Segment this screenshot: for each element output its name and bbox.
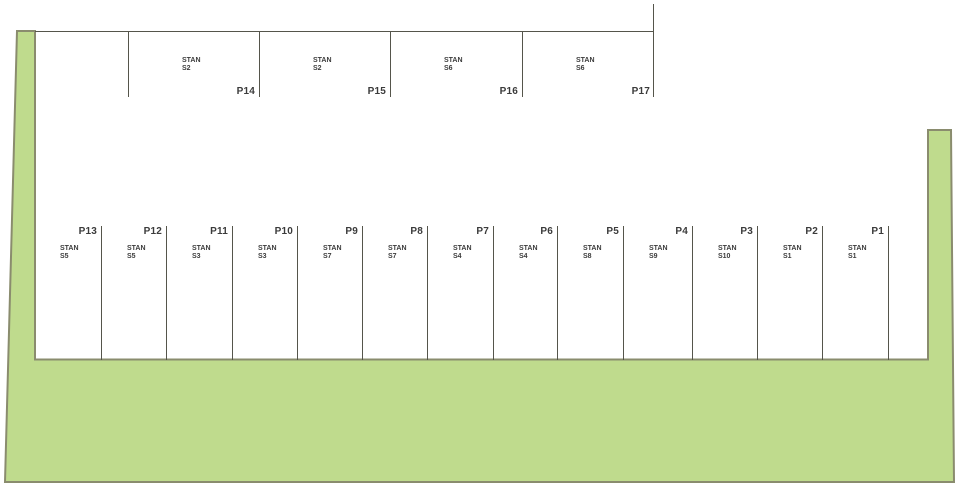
stall-unit-code: S3	[258, 253, 267, 260]
stall-assignment-label: STANS3	[192, 245, 211, 260]
stall-unit-word: STAN	[388, 245, 407, 252]
parking-stall: P7 STANS4	[428, 226, 494, 360]
stall-unit-word: STAN	[649, 245, 668, 252]
parking-stall: P12 STANS5	[102, 226, 167, 360]
stall-unit-code: S6	[576, 65, 585, 72]
stall-id-label: P14	[237, 86, 255, 97]
stall-id-label: P5	[606, 226, 619, 237]
stall-assignment-label: STANS2	[182, 57, 201, 72]
stall-unit-code: S7	[388, 253, 397, 260]
stall-unit-word: STAN	[192, 245, 211, 252]
site-plan: STANS2 P14 STANS2 P15 STANS6 P16 STANS6 …	[0, 0, 960, 489]
parking-stall: STANS6 P17	[522, 32, 654, 97]
stall-assignment-label: STANS7	[388, 245, 407, 260]
stall-id-label: P4	[675, 226, 688, 237]
stall-assignment-label: STANS2	[313, 57, 332, 72]
stall-assignment-label: STANS1	[848, 245, 867, 260]
stall-id-label: P2	[805, 226, 818, 237]
stall-unit-word: STAN	[848, 245, 867, 252]
stall-assignment-label: STANS4	[519, 245, 538, 260]
parking-stall: P4 STANS9	[624, 226, 693, 360]
stall-id-label: P3	[740, 226, 753, 237]
parking-stall: P9 STANS7	[298, 226, 363, 360]
parking-stall: P2 STANS1	[758, 226, 823, 360]
parking-stall: P6 STANS4	[494, 226, 558, 360]
stall-unit-code: S1	[848, 253, 857, 260]
stall-unit-word: STAN	[718, 245, 737, 252]
stall-id-label: P8	[410, 226, 423, 237]
stall-assignment-label: STANS5	[127, 245, 146, 260]
stall-unit-word: STAN	[313, 57, 332, 64]
stall-assignment-label: STANS8	[583, 245, 602, 260]
stall-unit-code: S10	[718, 253, 730, 260]
stall-unit-code: S9	[649, 253, 658, 260]
parking-stall: P5 STANS8	[558, 226, 624, 360]
parking-stall: P3 STANS10	[693, 226, 758, 360]
parking-stall: STANS2 P15	[259, 32, 390, 97]
stall-unit-code: S6	[444, 65, 453, 72]
parking-stall: P10 STANS3	[233, 226, 298, 360]
stall-unit-word: STAN	[258, 245, 277, 252]
stall-unit-code: S5	[127, 253, 136, 260]
stall-unit-word: STAN	[323, 245, 342, 252]
stall-assignment-label: STANS7	[323, 245, 342, 260]
stall-unit-code: S4	[519, 253, 528, 260]
stall-assignment-label: STANS1	[783, 245, 802, 260]
parking-stall: STANS2 P14	[128, 32, 259, 97]
parking-stall: STANS6 P16	[390, 32, 522, 97]
stall-unit-code: S2	[182, 65, 191, 72]
stall-assignment-label: STANS6	[444, 57, 463, 72]
stall-id-label: P13	[79, 226, 97, 237]
stall-unit-word: STAN	[444, 57, 463, 64]
stall-id-label: P15	[368, 86, 386, 97]
stall-unit-code: S3	[192, 253, 201, 260]
parking-stall: P8 STANS7	[363, 226, 428, 360]
stall-unit-code: S8	[583, 253, 592, 260]
stall-unit-code: S7	[323, 253, 332, 260]
stall-assignment-label: STANS9	[649, 245, 668, 260]
stall-unit-word: STAN	[127, 245, 146, 252]
stall-assignment-label: STANS4	[453, 245, 472, 260]
parking-stall: P1 STANS1	[823, 226, 889, 360]
stall-unit-word: STAN	[519, 245, 538, 252]
stall-unit-code: S2	[313, 65, 322, 72]
parking-stall: P11 STANS3	[167, 226, 233, 360]
stall-id-label: P16	[500, 86, 518, 97]
stall-assignment-label: STANS10	[718, 245, 737, 260]
stall-unit-word: STAN	[783, 245, 802, 252]
stall-id-label: P9	[345, 226, 358, 237]
stall-id-label: P11	[210, 226, 228, 237]
stall-unit-word: STAN	[182, 57, 201, 64]
stall-unit-word: STAN	[583, 245, 602, 252]
stall-id-label: P17	[632, 86, 650, 97]
stall-unit-word: STAN	[60, 245, 79, 252]
stall-id-label: P1	[871, 226, 884, 237]
stall-assignment-label: STANS3	[258, 245, 277, 260]
stall-unit-word: STAN	[453, 245, 472, 252]
stall-id-label: P6	[540, 226, 553, 237]
stall-assignment-label: STANS6	[576, 57, 595, 72]
stall-unit-word: STAN	[576, 57, 595, 64]
stall-unit-code: S5	[60, 253, 69, 260]
parking-stall: P13 STANS5	[35, 226, 102, 360]
stall-id-label: P7	[476, 226, 489, 237]
stall-assignment-label: STANS5	[60, 245, 79, 260]
stall-id-label: P10	[275, 226, 293, 237]
stall-unit-code: S4	[453, 253, 462, 260]
stall-id-label: P12	[144, 226, 162, 237]
stall-unit-code: S1	[783, 253, 792, 260]
